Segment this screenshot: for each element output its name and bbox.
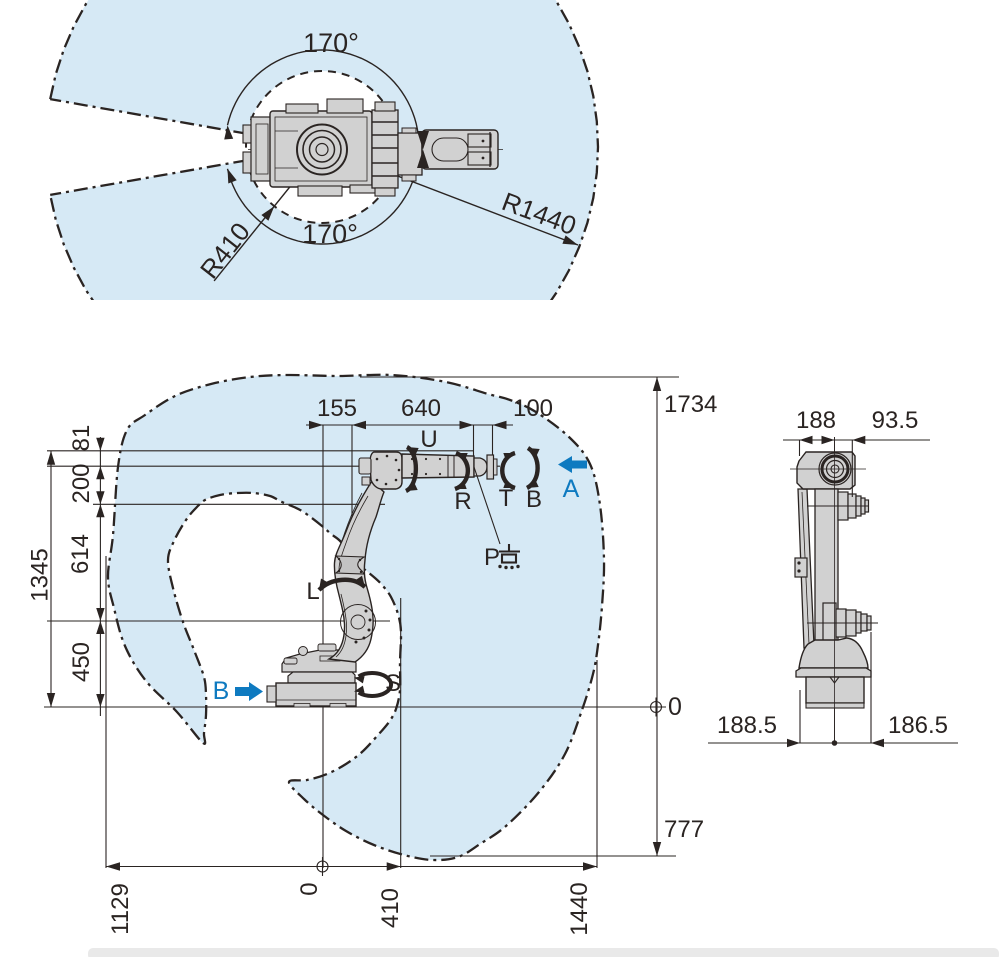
svg-text:B: B [213,677,230,705]
svg-text:T: T [499,485,514,512]
svg-text:100: 100 [513,395,553,422]
svg-text:L: L [306,578,319,605]
svg-text:81: 81 [68,425,95,452]
svg-text:S: S [385,670,401,697]
svg-text:0: 0 [296,882,323,895]
svg-text:93.5: 93.5 [872,407,919,434]
svg-text:170°: 170° [303,28,359,58]
svg-text:410: 410 [377,888,404,928]
svg-text:0: 0 [668,693,682,721]
svg-text:200: 200 [68,463,95,503]
svg-text:614: 614 [67,534,94,574]
svg-text:186.5: 186.5 [888,712,948,739]
svg-text:1345: 1345 [27,548,54,601]
svg-text:155: 155 [317,395,357,422]
svg-text:170°: 170° [302,219,358,249]
svg-text:U: U [420,426,437,453]
svg-text:1734: 1734 [664,391,717,418]
svg-text:188: 188 [796,407,836,434]
svg-text:188.5: 188.5 [717,712,777,739]
svg-text:A: A [563,475,580,503]
svg-text:777: 777 [664,816,704,843]
svg-text:B: B [526,486,542,513]
svg-text:450: 450 [68,642,95,682]
svg-text:640: 640 [401,395,441,422]
svg-text:P: P [484,544,500,571]
svg-text:R: R [454,488,471,515]
svg-text:1440: 1440 [566,882,593,935]
svg-text:1129: 1129 [107,883,134,935]
